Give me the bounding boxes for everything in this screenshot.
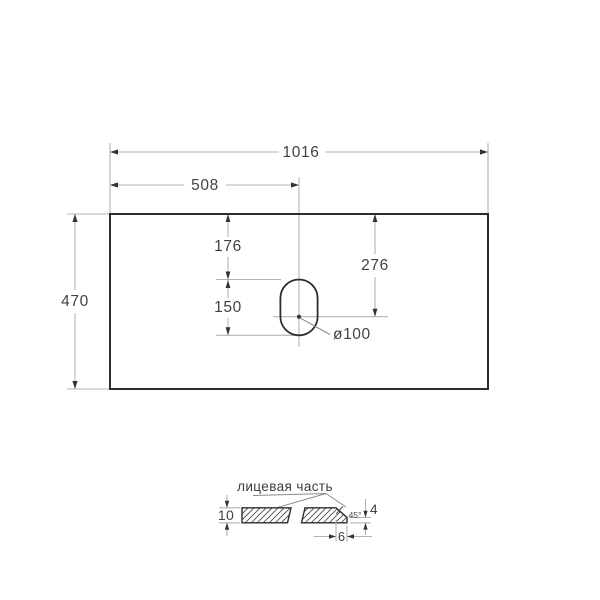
dimension-text-thickness: 10 [218, 507, 234, 523]
dimension-text-overall-width: 1016 [283, 144, 320, 161]
section-view: лицевая часть 10 4 45° [218, 479, 378, 544]
dimension-text-hole-top-offset: 176 [214, 238, 242, 255]
dimension-hole-length: 150 [214, 280, 242, 335]
arrowhead [480, 149, 488, 154]
arrowhead [329, 534, 336, 538]
dimension-thickness: 10 [218, 495, 240, 536]
arrowhead [373, 309, 378, 317]
dimension-overall-width: 1016 [110, 144, 488, 161]
arrowhead [225, 523, 229, 530]
dimension-overall-depth: 470 [61, 214, 89, 389]
hole-center-point [297, 315, 301, 319]
arrowhead [110, 182, 118, 187]
dimension-hole-top-offset: 176 [214, 214, 242, 280]
arrowhead [373, 214, 378, 222]
arrowhead [291, 182, 299, 187]
arrowhead [226, 327, 231, 335]
arrowhead [110, 149, 118, 154]
diameter-leader-line [301, 318, 331, 334]
chamfer-angle-text: 45° [349, 510, 362, 520]
dimension-hole-diameter: ø100 [297, 315, 371, 343]
arrowhead [226, 280, 231, 288]
technical-drawing: 1016 508 470 176 [0, 0, 600, 600]
face-side-leader-lines [253, 494, 346, 508]
dimension-text-hole-diameter: ø100 [333, 326, 371, 343]
dimension-text-overall-depth: 470 [61, 293, 89, 310]
dimension-text-chamfer-width: 6 [338, 529, 345, 544]
dimension-text-hole-center: 508 [191, 177, 219, 194]
dimension-text-hole-length: 150 [214, 299, 242, 316]
arrowhead [226, 272, 231, 280]
dimension-text-edge-land: 4 [370, 501, 378, 517]
arrowhead [363, 523, 367, 530]
arrowhead [72, 381, 77, 389]
dimension-hole-center-from-left: 508 [110, 177, 299, 194]
arrowhead [347, 534, 354, 538]
plan-view: 1016 508 470 176 [61, 143, 488, 389]
dimension-hole-arc-center-offset: 276 [361, 214, 389, 317]
arrowhead [226, 214, 231, 222]
face-side-label: лицевая часть [237, 479, 333, 494]
arrowhead [72, 214, 77, 222]
arrowhead [363, 511, 367, 518]
dimension-text-arc-center-offset: 276 [361, 257, 389, 274]
section-piece-left [242, 508, 291, 523]
